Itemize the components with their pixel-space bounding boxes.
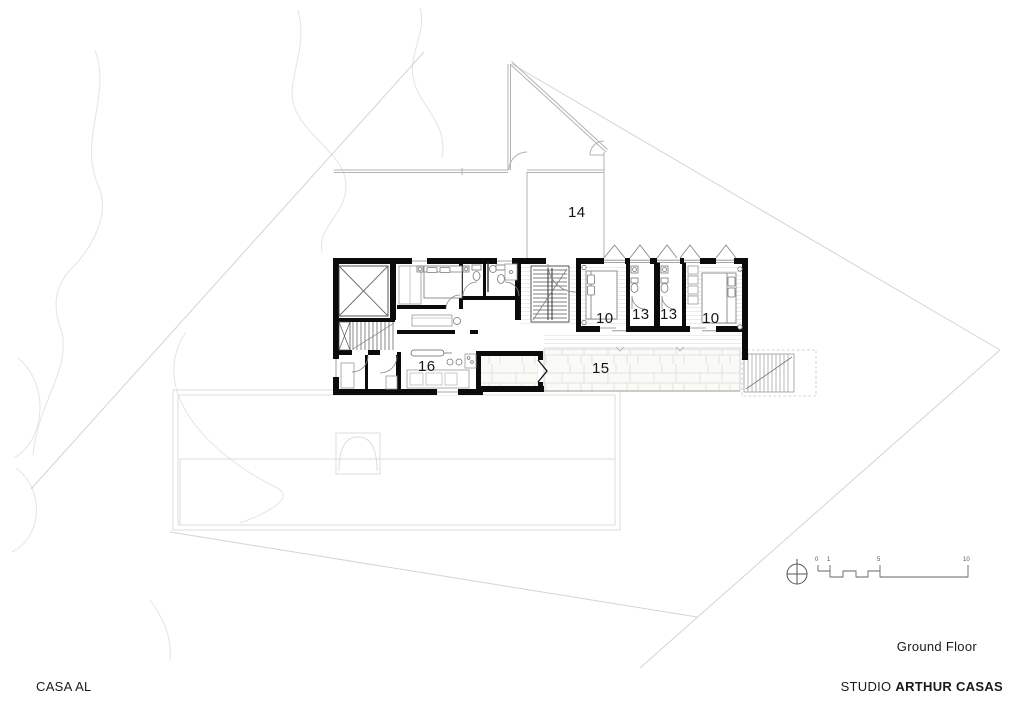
- room-label-10-right: 10: [702, 310, 720, 327]
- main-stair: [531, 264, 576, 322]
- studio-name: ARTHUR CASAS: [895, 679, 1003, 694]
- service-stair: [339, 322, 394, 350]
- floor-plan-sheet: 14 10 13 13 10 16 15 0 1 5 10 Ground Flo…: [0, 0, 1024, 724]
- drawing-title: Ground Floor: [897, 639, 977, 654]
- project-name: CASA AL: [36, 679, 92, 694]
- north-indicator-icon: [787, 559, 807, 584]
- room-label-13-left: 13: [632, 306, 650, 323]
- lower-level-footprint: [173, 390, 620, 530]
- room-label-10-left: 10: [596, 310, 614, 327]
- garage-void: [339, 266, 388, 316]
- scale-bar: [818, 565, 968, 577]
- scale-tick-5: 5: [877, 557, 880, 563]
- studio-prefix: STUDIO: [841, 679, 896, 694]
- room-label-16: 16: [418, 358, 436, 375]
- scale-tick-0: 0: [815, 557, 818, 563]
- scale-tick-1: 1: [827, 557, 830, 563]
- room-label-13-right: 13: [660, 306, 678, 323]
- site-contour-lines: [12, 8, 443, 660]
- shutter-triangles: [604, 245, 736, 258]
- studio-credit: STUDIO ARTHUR CASAS: [841, 679, 1003, 694]
- external-stair: [742, 350, 816, 396]
- room-label-14: 14: [568, 204, 586, 221]
- room-label-15: 15: [592, 360, 610, 377]
- scale-tick-10: 10: [963, 557, 970, 563]
- floor-plan-drawing: [0, 0, 1024, 724]
- upper-level-walls: [334, 62, 608, 259]
